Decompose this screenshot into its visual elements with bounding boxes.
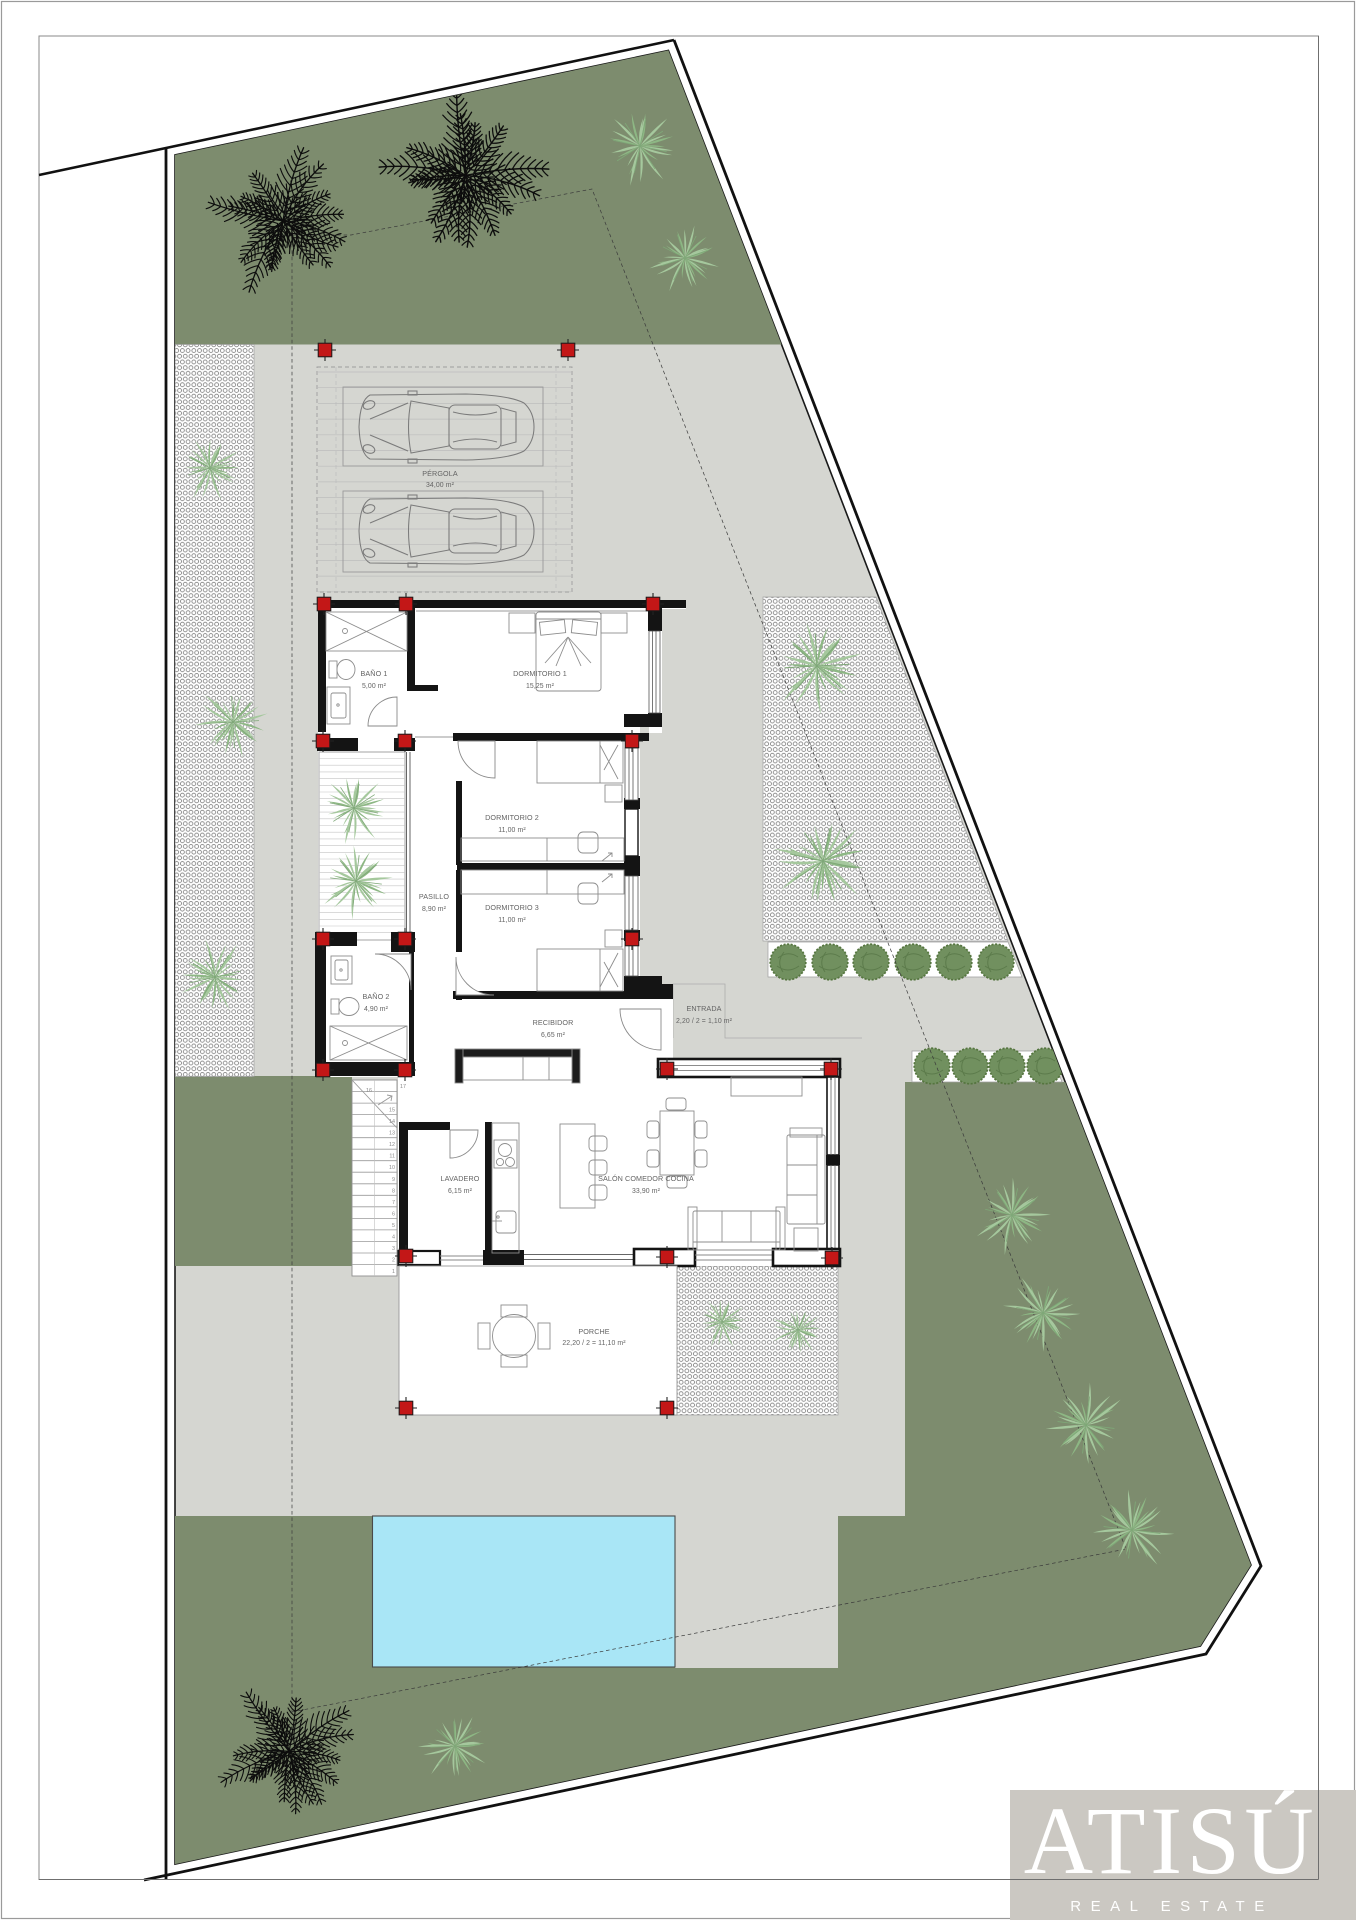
svg-text:LAVADERO: LAVADERO [441,1174,480,1183]
svg-text:5,00 m²: 5,00 m² [362,683,387,690]
svg-text:3: 3 [392,1246,395,1252]
svg-text:6,15 m²: 6,15 m² [448,1188,473,1195]
svg-text:16: 16 [366,1088,372,1094]
svg-text:22,20 / 2 = 11,10 m²: 22,20 / 2 = 11,10 m² [562,1340,626,1347]
svg-text:PASILLO: PASILLO [419,892,449,901]
svg-text:ATISÚ: ATISÚ [1024,1787,1319,1894]
svg-text:PÉRGOLA: PÉRGOLA [422,469,458,478]
svg-text:4,90 m²: 4,90 m² [364,1006,389,1013]
svg-text:5: 5 [392,1223,395,1229]
svg-text:11: 11 [389,1154,395,1160]
svg-text:15,25 m²: 15,25 m² [526,683,555,690]
svg-text:9: 9 [392,1177,395,1183]
svg-text:6: 6 [392,1211,395,1217]
svg-text:8,90 m²: 8,90 m² [422,906,447,913]
svg-text:7: 7 [392,1200,395,1206]
svg-text:DORMITORIO 2: DORMITORIO 2 [485,813,539,822]
svg-text:PORCHE: PORCHE [578,1327,609,1336]
svg-text:14: 14 [389,1119,395,1125]
svg-text:15: 15 [389,1108,395,1114]
svg-text:6,65 m²: 6,65 m² [541,1032,566,1039]
svg-text:13: 13 [389,1131,395,1137]
svg-text:BAÑO 1: BAÑO 1 [361,669,388,678]
svg-text:RECIBIDOR: RECIBIDOR [533,1018,574,1027]
svg-text:2,20 / 2 = 1,10 m²: 2,20 / 2 = 1,10 m² [676,1018,733,1025]
svg-text:2: 2 [392,1258,395,1264]
svg-text:8: 8 [392,1188,395,1194]
svg-text:BAÑO 2: BAÑO 2 [363,992,390,1001]
svg-text:1: 1 [392,1269,395,1275]
svg-text:DORMITORIO 1: DORMITORIO 1 [513,669,567,678]
svg-text:REAL ESTATE: REAL ESTATE [1070,1898,1273,1915]
svg-text:11,00 m²: 11,00 m² [498,827,526,834]
svg-text:33,90 m²: 33,90 m² [632,1188,661,1195]
svg-text:ENTRADA: ENTRADA [686,1004,721,1013]
svg-text:17: 17 [400,1084,406,1090]
svg-text:12: 12 [389,1142,395,1148]
svg-text:DORMITORIO 3: DORMITORIO 3 [485,903,539,912]
svg-text:34,00 m²: 34,00 m² [426,482,455,489]
svg-text:SALÓN COMEDOR COCINA: SALÓN COMEDOR COCINA [598,1174,694,1183]
svg-text:4: 4 [392,1234,395,1240]
svg-text:10: 10 [389,1165,395,1171]
svg-text:11,00 m²: 11,00 m² [498,917,526,924]
